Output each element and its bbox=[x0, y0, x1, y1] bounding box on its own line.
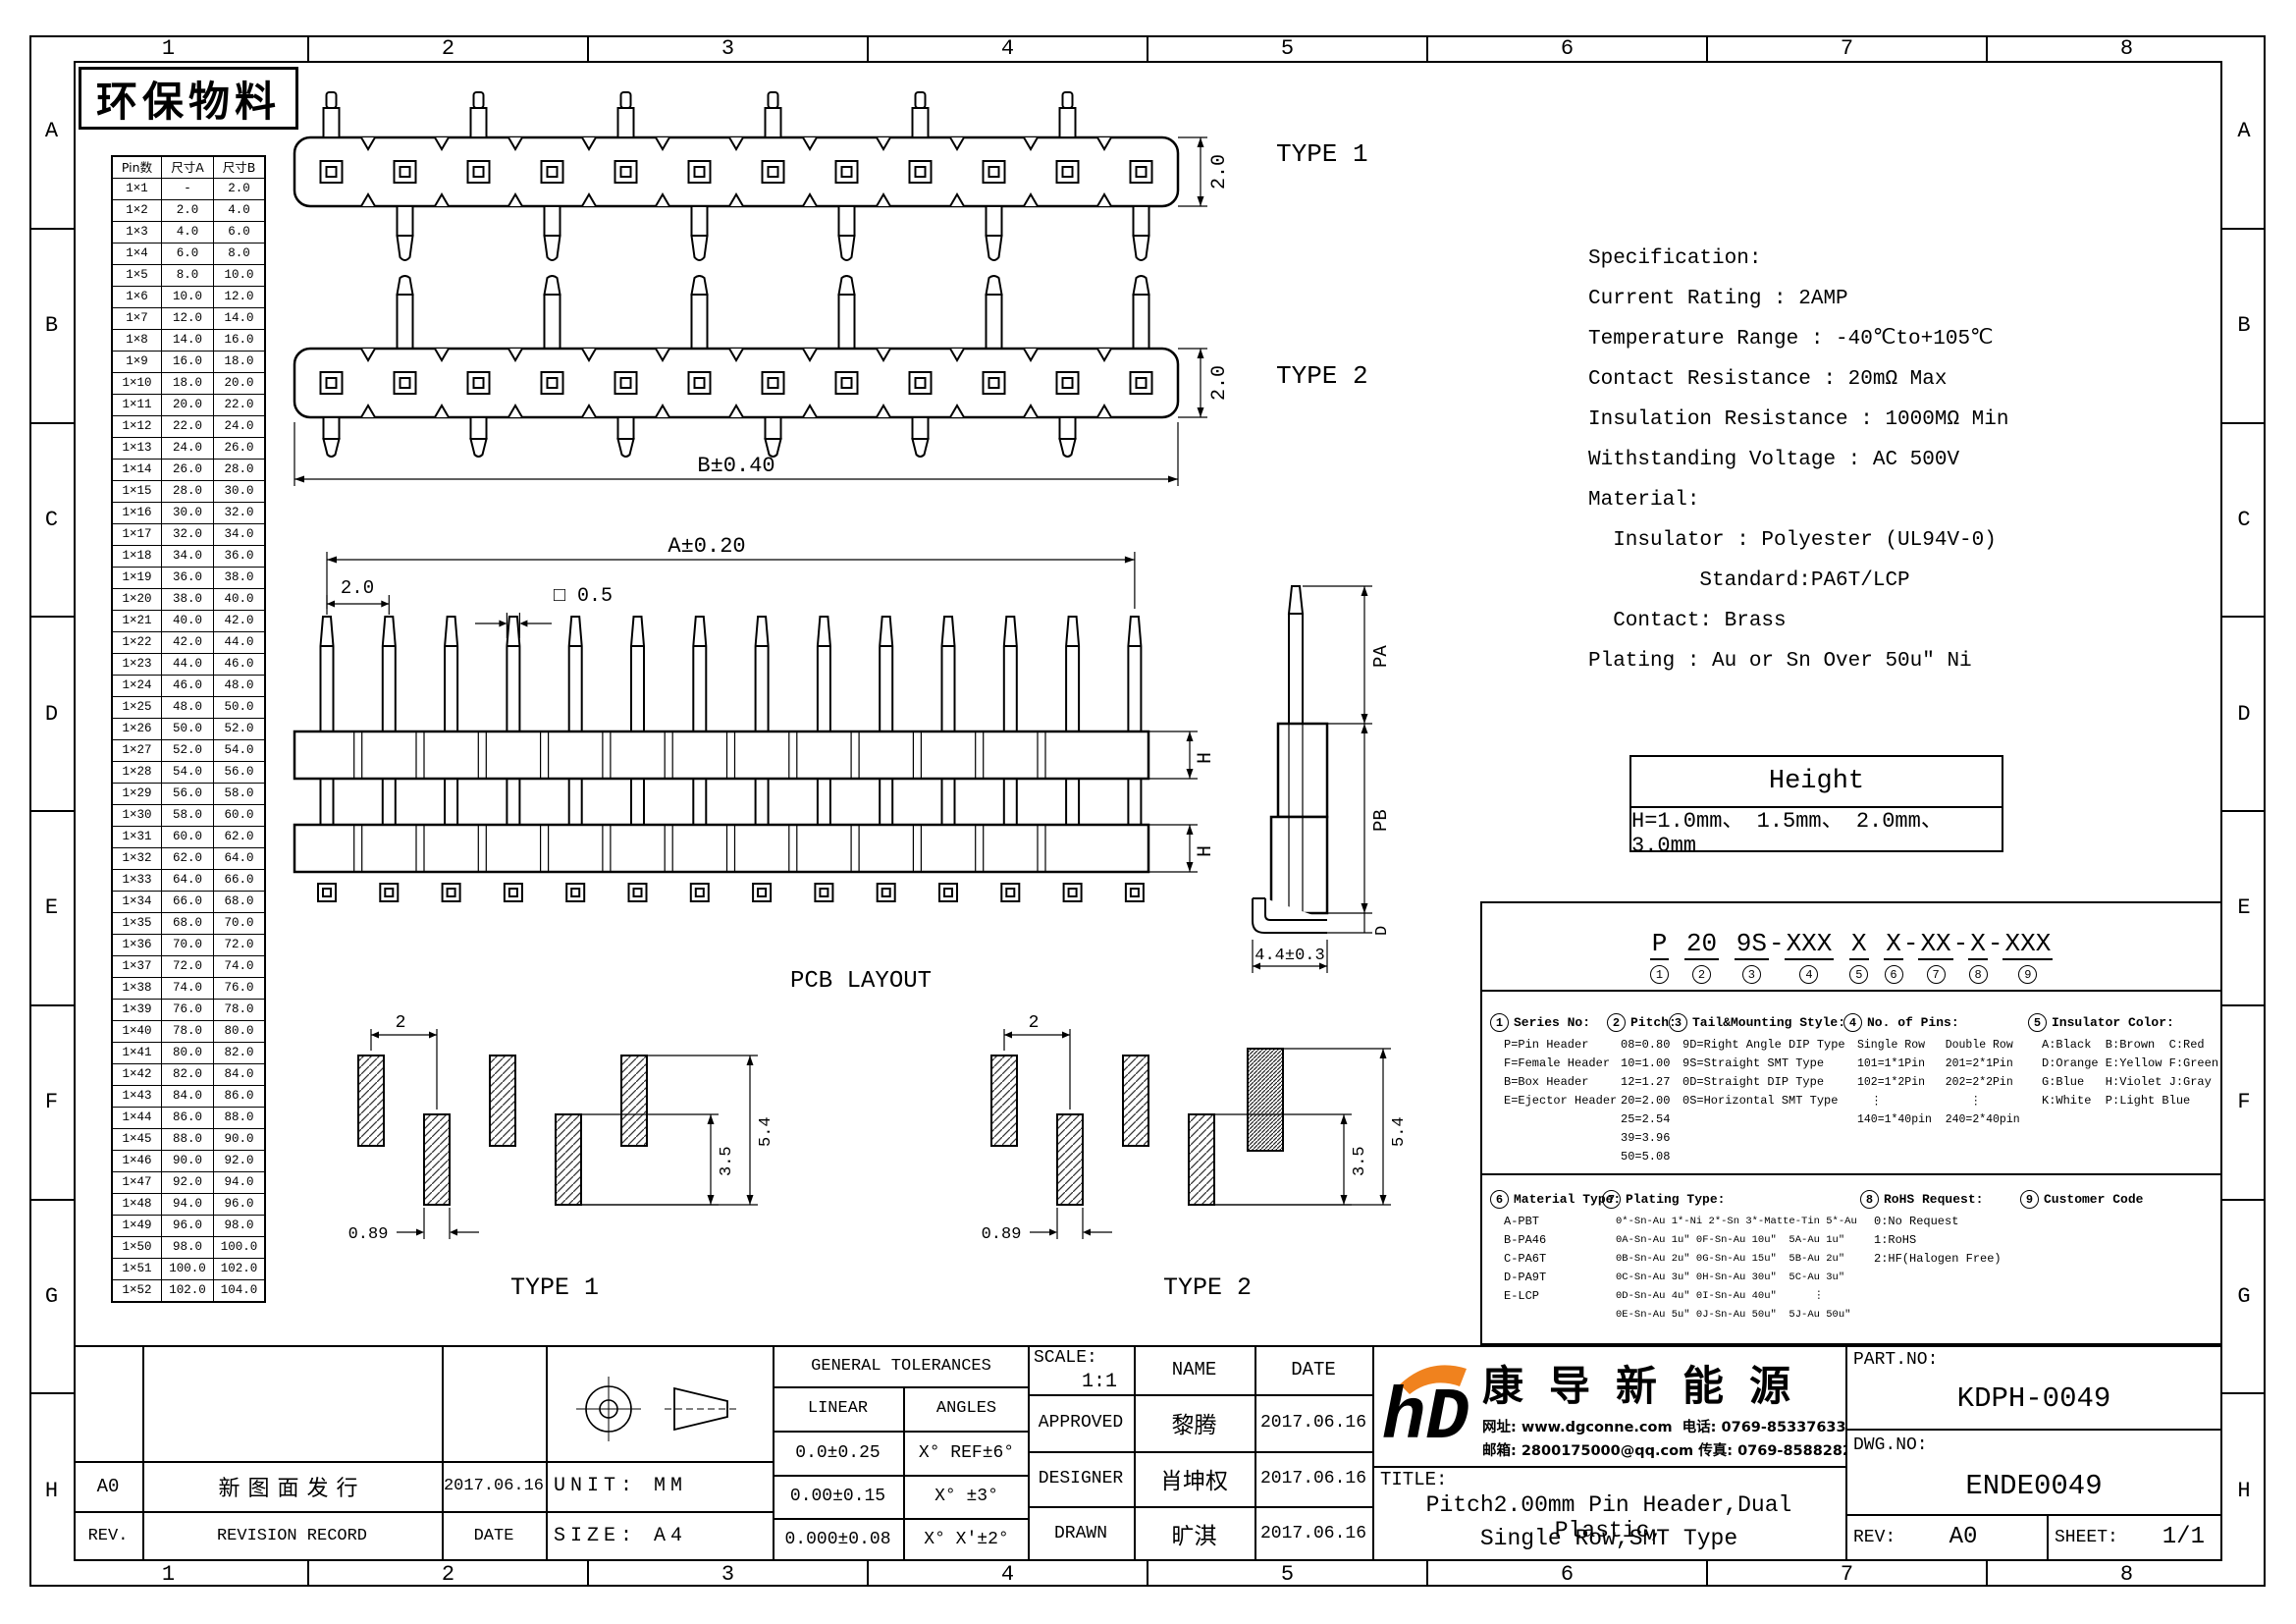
dim-b-cell: 98.0 bbox=[214, 1216, 266, 1237]
zone-col-label: 3 bbox=[589, 35, 869, 61]
circled-number-icon: 2 bbox=[1607, 1013, 1626, 1032]
pin-count-cell: 1×6 bbox=[112, 287, 162, 308]
dim-a-cell: 22.0 bbox=[162, 416, 214, 438]
dim-a-cell: 62.0 bbox=[162, 848, 214, 870]
dim-b-cell: 74.0 bbox=[214, 956, 266, 978]
dim-a-cell: 80.0 bbox=[162, 1043, 214, 1064]
legend-item: 0S=Horizontal SMT Type bbox=[1682, 1092, 1845, 1110]
pin-table-row: 1×34 66.0 68.0 bbox=[112, 892, 265, 913]
zone-row-label: G bbox=[2222, 1201, 2266, 1395]
tolerance-value: X° ±3° bbox=[903, 1475, 1030, 1518]
dim-b-cell: 2.0 bbox=[214, 179, 266, 200]
dim-a-cell: 46.0 bbox=[162, 676, 214, 697]
pin-count-cell: 1×27 bbox=[112, 740, 162, 762]
dim-a-cell: 8.0 bbox=[162, 265, 214, 287]
dwg-no-value: ENDE0049 bbox=[1845, 1470, 2222, 1502]
pin-table-row: 1×3 4.0 6.0 bbox=[112, 222, 265, 244]
dim-b-cell: 54.0 bbox=[214, 740, 266, 762]
layout1-width-dim: 0.89 bbox=[348, 1225, 389, 1244]
pin-count-cell: 1×44 bbox=[112, 1108, 162, 1129]
part-no-label: PART.NO: bbox=[1853, 1350, 1938, 1370]
layout2-label: TYPE 2 bbox=[1163, 1273, 1252, 1302]
type2-assembly-drawing: 2.0 B±0.40 bbox=[290, 275, 1271, 506]
pin-count-cell: 1×3 bbox=[112, 222, 162, 244]
dim-b-cell: 12.0 bbox=[214, 287, 266, 308]
dim-a-cell: 14.0 bbox=[162, 330, 214, 352]
eco-material-label: 环保物料 bbox=[79, 67, 298, 130]
legend-item: 102=1*2Pin 202=2*2Pin bbox=[1857, 1073, 2020, 1092]
zone-row-label: A bbox=[2222, 35, 2266, 230]
dim-b-cell: 16.0 bbox=[214, 330, 266, 352]
dim-b-cell: 20.0 bbox=[214, 373, 266, 395]
side-pa-dim: PA bbox=[1370, 645, 1392, 668]
legend-pitch: 2Pitch: 08=0.8010=1.0012=1.2720=2.0025=2… bbox=[1607, 1013, 1677, 1166]
pin-table-row: 1×12 22.0 24.0 bbox=[112, 416, 265, 438]
company-block: hD 康导新能源 网址: www.dgconne.com 电话: 0769-85… bbox=[1372, 1345, 1845, 1466]
dim-b-cell: 94.0 bbox=[214, 1172, 266, 1194]
zone-row-label: D bbox=[29, 618, 74, 812]
segment-index-icon: 8 bbox=[1969, 965, 1988, 984]
pin-table-row: 1×32 62.0 64.0 bbox=[112, 848, 265, 870]
part-number-segment: X 8 - bbox=[1968, 929, 2002, 984]
pin-table-row: 1×5 8.0 10.0 bbox=[112, 265, 265, 287]
pin-table-row: 1×2 2.0 4.0 bbox=[112, 200, 265, 222]
circled-number-icon: 4 bbox=[1843, 1013, 1862, 1032]
zone-row-label: F bbox=[29, 1006, 74, 1201]
pin-count-cell: 1×2 bbox=[112, 200, 162, 222]
legend-item: G:Blue H:Violet J:Gray bbox=[2042, 1073, 2218, 1092]
side-d-dim: D bbox=[1373, 926, 1392, 936]
dim-b-cell: 32.0 bbox=[214, 503, 266, 524]
rev-cell: REV: A0 bbox=[1845, 1514, 2047, 1561]
zone-col-label: 7 bbox=[1708, 1561, 1988, 1587]
pin-count-cell: 1×36 bbox=[112, 935, 162, 956]
zone-col-label: 6 bbox=[1428, 35, 1708, 61]
dim-b-cell: 78.0 bbox=[214, 1000, 266, 1021]
part-number-segment: X 5 bbox=[1849, 929, 1884, 984]
solder-pads bbox=[991, 1049, 1283, 1205]
pin-table-row: 1×18 34.0 36.0 bbox=[112, 546, 265, 568]
pin-table-row: 1×28 54.0 56.0 bbox=[112, 762, 265, 784]
dim-a-cell: 24.0 bbox=[162, 438, 214, 460]
dim-a-cell: 70.0 bbox=[162, 935, 214, 956]
type1-view-label: TYPE 1 bbox=[1276, 139, 1368, 169]
approved-name: 黎腾 bbox=[1134, 1394, 1255, 1451]
dim-b-cell: 58.0 bbox=[214, 784, 266, 805]
pin-count-cell: 1×34 bbox=[112, 892, 162, 913]
circled-number-icon: 5 bbox=[2028, 1013, 2047, 1032]
zone-band-left: ABCDEFGH bbox=[29, 35, 74, 1587]
pin-count-cell: 1×19 bbox=[112, 568, 162, 589]
layout2-h2-dim: 5.4 bbox=[1390, 1116, 1409, 1147]
segment-index-icon: 7 bbox=[1927, 965, 1946, 984]
ordering-info-box: P 1 20 2 9S 3 - XXX 4 bbox=[1480, 901, 2222, 1345]
dim-b-cell: 24.0 bbox=[214, 416, 266, 438]
pin-table-row: 1×20 38.0 40.0 bbox=[112, 589, 265, 611]
legend-insulator-color: 5Insulator Color: A:Black B:Brown C:RedD… bbox=[2028, 1013, 2218, 1110]
pin-count-cell: 1×13 bbox=[112, 438, 162, 460]
part-number-token: X bbox=[1884, 929, 1903, 960]
dim-b-cell: 76.0 bbox=[214, 978, 266, 1000]
dim-a-cell: 34.0 bbox=[162, 546, 214, 568]
legend-customer-code: 9Customer Code bbox=[2020, 1190, 2143, 1209]
dim-a-cell: 96.0 bbox=[162, 1216, 214, 1237]
revision-date-value: 2017.06.16 bbox=[442, 1461, 546, 1511]
dim-a-cell: 84.0 bbox=[162, 1086, 214, 1108]
dim-a-cell: 32.0 bbox=[162, 524, 214, 546]
segment-index-icon: 3 bbox=[1742, 965, 1761, 984]
zone-col-label: 5 bbox=[1148, 1561, 1428, 1587]
tolerance-value: 0.000±0.08 bbox=[773, 1518, 903, 1561]
dim-a-cell: 86.0 bbox=[162, 1108, 214, 1129]
pin-table-row: 1×17 32.0 34.0 bbox=[112, 524, 265, 546]
circled-number-icon: 8 bbox=[1860, 1190, 1879, 1209]
tolerance-value: X° X'±2° bbox=[903, 1518, 1030, 1561]
dim-b-cell: 6.0 bbox=[214, 222, 266, 244]
dim-a-cell: 60.0 bbox=[162, 827, 214, 848]
dim-a-cell: 6.0 bbox=[162, 244, 214, 265]
zone-col-label: 4 bbox=[869, 1561, 1148, 1587]
part-no-cell: PART.NO: KDPH-0049 bbox=[1845, 1345, 2222, 1429]
legend-item: 1:RoHS bbox=[1874, 1231, 2002, 1250]
dim-b-cell: 80.0 bbox=[214, 1021, 266, 1043]
zone-band-top: 12345678 bbox=[29, 35, 2266, 61]
legend-item: K:White P:Light Blue bbox=[2042, 1092, 2218, 1110]
pcb-layout-type2: 2 0.89 3.5 5.4 bbox=[947, 1011, 1418, 1272]
circled-number-icon: 3 bbox=[1669, 1013, 1687, 1032]
side-pb-dim: PB bbox=[1370, 809, 1392, 832]
pin-table-row: 1×45 88.0 90.0 bbox=[112, 1129, 265, 1151]
dim-b-cell: 40.0 bbox=[214, 589, 266, 611]
dim-a-cell: - bbox=[162, 179, 214, 200]
pin-count-cell: 1×41 bbox=[112, 1043, 162, 1064]
pin-count-cell: 1×46 bbox=[112, 1151, 162, 1172]
legend-rohs: 8RoHS Request: 0:No Request1:RoHS2:HF(Ha… bbox=[1860, 1190, 2002, 1269]
spec-line: Standard:PA6T/LCP bbox=[1588, 561, 2050, 601]
part-number-token: X bbox=[1968, 929, 1988, 960]
dim-b-cell: 100.0 bbox=[214, 1237, 266, 1259]
tolerance-value: 0.00±0.15 bbox=[773, 1475, 903, 1518]
spec-line: Contact Resistance : 20mΩ Max bbox=[1588, 359, 2050, 400]
dim-a-cell: 2.0 bbox=[162, 200, 214, 222]
pin-table-row: 1×44 86.0 88.0 bbox=[112, 1108, 265, 1129]
dim-b-cell: 82.0 bbox=[214, 1043, 266, 1064]
pin-table-row: 1×21 40.0 42.0 bbox=[112, 611, 265, 632]
legend-item: ⋮ ⋮ bbox=[1857, 1092, 2020, 1110]
side-foot-dim: 4.4±0.3 bbox=[1255, 947, 1324, 965]
zone-row-label: G bbox=[29, 1201, 74, 1395]
zone-row-label: A bbox=[29, 35, 74, 230]
legend-item: 50=5.08 bbox=[1621, 1148, 1677, 1166]
legend-item: Single Row Double Row bbox=[1857, 1036, 2020, 1055]
pin-table-row: 1×47 92.0 94.0 bbox=[112, 1172, 265, 1194]
pin-table-row: 1×36 70.0 72.0 bbox=[112, 935, 265, 956]
segment-index-icon: 4 bbox=[1799, 965, 1818, 984]
height-table-title: Height bbox=[1631, 757, 2002, 808]
part-number-token: XX bbox=[1918, 929, 1952, 960]
sheet-value: 1/1 bbox=[2163, 1514, 2205, 1561]
legend-item: 0E-Sn-Au 5u″ 0J-Sn-Au 50u″ 5J-Au 50u″ bbox=[1616, 1306, 1857, 1325]
zone-row-label: H bbox=[2222, 1394, 2266, 1587]
specification-block: Specification:Current Rating : 2AMPTempe… bbox=[1588, 239, 2050, 681]
solder-pads bbox=[358, 1056, 647, 1205]
dim-b-cell: 102.0 bbox=[214, 1259, 266, 1280]
top-pins bbox=[398, 276, 1149, 349]
pin-count-cell: 1×24 bbox=[112, 676, 162, 697]
pin-table-row: 1×24 46.0 48.0 bbox=[112, 676, 265, 697]
segment-index-icon: 1 bbox=[1650, 965, 1669, 984]
pin-count-cell: 1×28 bbox=[112, 762, 162, 784]
company-contact-line1: 网址: www.dgconne.com 电话: 0769-85337633 bbox=[1482, 1416, 1845, 1436]
dim-b-cell: 14.0 bbox=[214, 308, 266, 330]
pin-table-row: 1×49 96.0 98.0 bbox=[112, 1216, 265, 1237]
spec-line: Insulator : Polyester (UL94V-0) bbox=[1588, 520, 2050, 561]
zone-col-label: 5 bbox=[1148, 35, 1428, 61]
dim-b-cell: 52.0 bbox=[214, 719, 266, 740]
pin-count-cell: 1×30 bbox=[112, 805, 162, 827]
pin-count-cell: 1×37 bbox=[112, 956, 162, 978]
dim-b-cell: 84.0 bbox=[214, 1064, 266, 1086]
legend-item: 39=3.96 bbox=[1621, 1129, 1677, 1148]
pin-count-cell: 1×49 bbox=[112, 1216, 162, 1237]
pin-count-cell: 1×11 bbox=[112, 395, 162, 416]
tolerances-title: GENERAL TOLERANCES bbox=[773, 1345, 1030, 1386]
dim-b-cell: 26.0 bbox=[214, 438, 266, 460]
dim-a-cell: 88.0 bbox=[162, 1129, 214, 1151]
dim-a-cell: 20.0 bbox=[162, 395, 214, 416]
part-number-segment: XX 7 - bbox=[1918, 929, 1968, 984]
front-pitch-dim: 2.0 bbox=[341, 577, 374, 599]
pin-count-cell: 1×1 bbox=[112, 179, 162, 200]
name-header: NAME bbox=[1134, 1345, 1255, 1394]
circled-number-icon: 9 bbox=[2020, 1190, 2039, 1209]
legend-item: D:Orange E:Yellow F:Green bbox=[2042, 1055, 2218, 1073]
zone-row-label: C bbox=[2222, 424, 2266, 619]
dim-b-cell: 22.0 bbox=[214, 395, 266, 416]
part-number-token: XXX bbox=[2002, 929, 2053, 960]
pin-count-cell: 1×31 bbox=[112, 827, 162, 848]
legend-item: 0:No Request bbox=[1874, 1213, 2002, 1231]
layout2-width-dim: 0.89 bbox=[982, 1225, 1022, 1244]
dim-b-cell: 46.0 bbox=[214, 654, 266, 676]
pin-count-cell: 1×10 bbox=[112, 373, 162, 395]
pin-table-row: 1×4 6.0 8.0 bbox=[112, 244, 265, 265]
drawing-title-cell: TITLE: Pitch2.00mm Pin Header,Dual Plast… bbox=[1372, 1466, 1845, 1561]
revision-rev-value: A0 bbox=[74, 1461, 142, 1511]
part-number-separator: - bbox=[1953, 929, 1969, 958]
bottom-pins bbox=[398, 206, 1149, 260]
pin-table-header: 尺寸A bbox=[162, 156, 214, 179]
logo-text: hD bbox=[1382, 1378, 1469, 1453]
pin-count-cell: 1×29 bbox=[112, 784, 162, 805]
dim-a-cell: 28.0 bbox=[162, 481, 214, 503]
legend-item: B=Box Header bbox=[1504, 1073, 1617, 1092]
pin-table-row: 1×15 28.0 30.0 bbox=[112, 481, 265, 503]
pin-count-cell: 1×14 bbox=[112, 460, 162, 481]
type2-b-dim: B±0.40 bbox=[697, 454, 774, 478]
pin-table-row: 1×41 80.0 82.0 bbox=[112, 1043, 265, 1064]
dim-b-cell: 18.0 bbox=[214, 352, 266, 373]
pin-count-cell: 1×48 bbox=[112, 1194, 162, 1216]
segment-index-icon: 9 bbox=[2018, 965, 2037, 984]
circled-number-icon: 6 bbox=[1490, 1190, 1509, 1209]
legend-item: 0D-Sn-Au 4u″ 0I-Sn-Au 40u″ ⋮ bbox=[1616, 1287, 1857, 1306]
pin-count-cell: 1×9 bbox=[112, 352, 162, 373]
lower-insulator-bar bbox=[294, 825, 1148, 872]
part-number-separator bbox=[1669, 929, 1684, 958]
dim-b-cell: 66.0 bbox=[214, 870, 266, 892]
pin-count-cell: 1×43 bbox=[112, 1086, 162, 1108]
company-contact-line2: 邮箱: 2800175000@qq.com 传真: 0769-85882827 bbox=[1482, 1439, 1845, 1460]
dim-a-cell: 92.0 bbox=[162, 1172, 214, 1194]
pin-table-row: 1×52 102.0 104.0 bbox=[112, 1280, 265, 1303]
unit-label: UNIT: MM bbox=[546, 1461, 773, 1511]
dim-b-cell: 72.0 bbox=[214, 935, 266, 956]
tolerances-linear-header: LINEAR bbox=[773, 1386, 903, 1431]
front-view-drawing: A±0.20 2.0 □ 0.5 H H bbox=[275, 530, 1256, 923]
dim-a-cell: 50.0 bbox=[162, 719, 214, 740]
part-number-token: P bbox=[1650, 929, 1670, 960]
pin-count-cell: 1×33 bbox=[112, 870, 162, 892]
zone-col-label: 6 bbox=[1428, 1561, 1708, 1587]
tolerance-value: X° REF±6° bbox=[903, 1431, 1030, 1475]
pin-count-cell: 1×45 bbox=[112, 1129, 162, 1151]
part-number-segment: XXX 4 bbox=[1785, 929, 1849, 984]
spec-line: Current Rating : 2AMP bbox=[1588, 279, 2050, 319]
pin-table-row: 1×14 26.0 28.0 bbox=[112, 460, 265, 481]
pin-table-row: 1×19 36.0 38.0 bbox=[112, 568, 265, 589]
dim-b-cell: 90.0 bbox=[214, 1129, 266, 1151]
part-number-segment: XXX 9 bbox=[2002, 929, 2053, 984]
pin-count-cell: 1×16 bbox=[112, 503, 162, 524]
circled-number-icon: 1 bbox=[1490, 1013, 1509, 1032]
dim-b-cell: 4.0 bbox=[214, 200, 266, 222]
dim-b-cell: 86.0 bbox=[214, 1086, 266, 1108]
legend-item: 2:HF(Halogen Free) bbox=[1874, 1250, 2002, 1269]
dwg-no-label: DWG.NO: bbox=[1853, 1435, 1928, 1455]
dim-a-cell: 76.0 bbox=[162, 1000, 214, 1021]
company-logo: hD bbox=[1378, 1355, 1474, 1453]
side-view-drawing: PA PB D 4.4±0.3 bbox=[1227, 574, 1443, 987]
pin-table-header: 尺寸B bbox=[214, 156, 266, 179]
pin-table-row: 1×43 84.0 86.0 bbox=[112, 1086, 265, 1108]
scale-label: SCALE: bbox=[1034, 1348, 1097, 1368]
rev-value: A0 bbox=[1904, 1514, 2022, 1561]
zone-row-label: H bbox=[29, 1394, 74, 1587]
scale-value: 1:1 bbox=[1082, 1371, 1117, 1393]
pin-count-cell: 1×22 bbox=[112, 632, 162, 654]
pin-count-cell: 1×35 bbox=[112, 913, 162, 935]
type1-assembly-drawing: 2.0 bbox=[290, 83, 1271, 285]
front-a-dim: A±0.20 bbox=[667, 534, 745, 559]
dim-a-cell: 100.0 bbox=[162, 1259, 214, 1280]
pin-count-table: Pin数 尺寸A 尺寸B 1×1 - 2.0 1×2 2.0 4.0 1×3 4… bbox=[111, 155, 266, 1303]
pin-table-row: 1×35 68.0 70.0 bbox=[112, 913, 265, 935]
pin-table-row: 1×29 56.0 58.0 bbox=[112, 784, 265, 805]
dim-b-cell: 68.0 bbox=[214, 892, 266, 913]
pin-count-cell: 1×38 bbox=[112, 978, 162, 1000]
dim-a-cell: 10.0 bbox=[162, 287, 214, 308]
legend-item: 25=2.54 bbox=[1621, 1110, 1677, 1129]
dim-b-cell: 88.0 bbox=[214, 1108, 266, 1129]
segment-index-icon: 5 bbox=[1849, 965, 1868, 984]
part-number-segment: X 6 - bbox=[1884, 929, 1918, 984]
part-number-token: XXX bbox=[1785, 929, 1835, 960]
pin-count-cell: 1×51 bbox=[112, 1259, 162, 1280]
dim-a-cell: 42.0 bbox=[162, 632, 214, 654]
dim-a-cell: 72.0 bbox=[162, 956, 214, 978]
dim-a-cell: 58.0 bbox=[162, 805, 214, 827]
pin-count-cell: 1×5 bbox=[112, 265, 162, 287]
drawing-sheet: 12345678 12345678 ABCDEFGH ABCDEFGH 环保物料… bbox=[0, 0, 2296, 1624]
spec-line: Insulation Resistance : 1000MΩ Min bbox=[1588, 400, 2050, 440]
legend-item: 0*-Sn-Au 1*-Ni 2*-Sn 3*-Matte-Tin 5*-Au bbox=[1616, 1213, 1857, 1231]
pin-table-row: 1×46 90.0 92.0 bbox=[112, 1151, 265, 1172]
dim-b-cell: 30.0 bbox=[214, 481, 266, 503]
legend-item: E=Ejector Header bbox=[1504, 1092, 1617, 1110]
pin-count-cell: 1×17 bbox=[112, 524, 162, 546]
dim-a-cell: 66.0 bbox=[162, 892, 214, 913]
drawn-label: DRAWN bbox=[1028, 1506, 1134, 1561]
segment-index-icon: 2 bbox=[1692, 965, 1711, 984]
legend-item: A:Black B:Brown C:Red bbox=[2042, 1036, 2218, 1055]
dim-b-cell: 104.0 bbox=[214, 1280, 266, 1303]
dim-a-cell: 90.0 bbox=[162, 1151, 214, 1172]
part-number-separator: - bbox=[1903, 929, 1919, 958]
zone-col-label: 2 bbox=[309, 35, 589, 61]
legend-item: F=Female Header bbox=[1504, 1055, 1617, 1073]
part-number-segment: P 1 bbox=[1650, 929, 1684, 984]
dim-b-cell: 38.0 bbox=[214, 568, 266, 589]
zone-row-label: C bbox=[29, 424, 74, 619]
pin-table-row: 1×8 14.0 16.0 bbox=[112, 330, 265, 352]
part-number-token: 20 bbox=[1684, 929, 1719, 960]
zone-band-bottom: 12345678 bbox=[29, 1561, 2266, 1587]
revision-record-value: 新图面发行 bbox=[142, 1461, 442, 1511]
pin-count-cell: 1×18 bbox=[112, 546, 162, 568]
dim-b-cell: 60.0 bbox=[214, 805, 266, 827]
pin-count-cell: 1×52 bbox=[112, 1280, 162, 1303]
dim-a-cell: 4.0 bbox=[162, 222, 214, 244]
pin-table-row: 1×13 24.0 26.0 bbox=[112, 438, 265, 460]
dim-b-cell: 34.0 bbox=[214, 524, 266, 546]
pin-count-cell: 1×21 bbox=[112, 611, 162, 632]
part-number-separator bbox=[1834, 929, 1849, 958]
part-number-separator: - bbox=[1769, 929, 1785, 958]
tolerance-value: 0.0±0.25 bbox=[773, 1431, 903, 1475]
pin-table-row: 1×22 42.0 44.0 bbox=[112, 632, 265, 654]
dim-b-cell: 92.0 bbox=[214, 1151, 266, 1172]
dim-a-cell: 26.0 bbox=[162, 460, 214, 481]
drawn-name: 旷淇 bbox=[1134, 1506, 1255, 1561]
dim-a-cell: 74.0 bbox=[162, 978, 214, 1000]
dim-b-cell: 70.0 bbox=[214, 913, 266, 935]
pin-count-cell: 1×50 bbox=[112, 1237, 162, 1259]
dim-b-cell: 28.0 bbox=[214, 460, 266, 481]
third-angle-projection-icon bbox=[564, 1365, 761, 1453]
rev-label: REV: bbox=[1853, 1528, 1896, 1547]
dim-b-cell: 62.0 bbox=[214, 827, 266, 848]
zone-col-label: 7 bbox=[1708, 35, 1988, 61]
spec-line: Withstanding Voltage : AC 500V bbox=[1588, 440, 2050, 480]
dim-b-cell: 42.0 bbox=[214, 611, 266, 632]
zone-col-label: 2 bbox=[309, 1561, 589, 1587]
part-number-token: X bbox=[1849, 929, 1869, 960]
dim-a-cell: 82.0 bbox=[162, 1064, 214, 1086]
legend-item: 0D=Straight DIP Type bbox=[1682, 1073, 1845, 1092]
dim-a-cell: 98.0 bbox=[162, 1237, 214, 1259]
approved-label: APPROVED bbox=[1028, 1394, 1134, 1451]
